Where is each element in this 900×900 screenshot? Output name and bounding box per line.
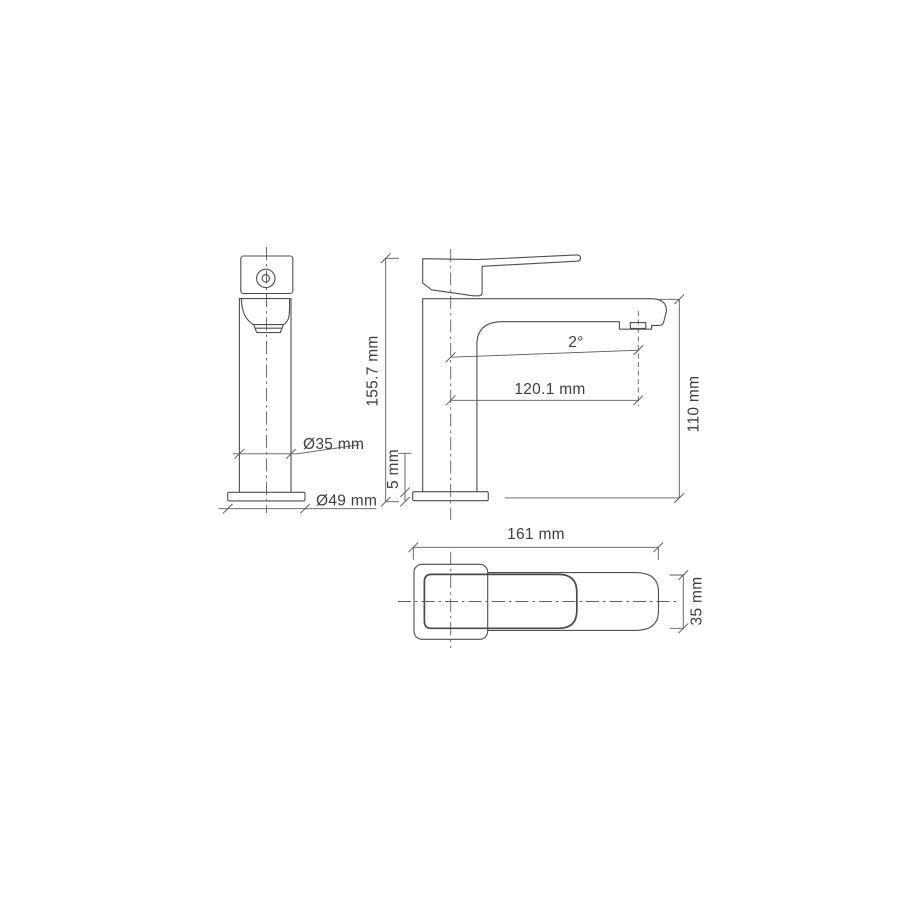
dim-spout-angle-line xyxy=(451,350,639,357)
indicator-dot xyxy=(262,275,269,282)
dim-outlet-height: 110 mm xyxy=(505,295,703,503)
dim-body-diameter: Ø35 mm xyxy=(233,436,364,458)
dim-outlet-height-label: 110 mm xyxy=(686,376,703,433)
dim-body-diameter-label: Ø35 mm xyxy=(303,436,364,453)
dim-base-plate-label: 5 mm xyxy=(385,449,402,489)
dim-base-diameter-label: Ø49 mm xyxy=(316,493,377,510)
side-view: 155.7 mm 5 mm 2° 120.1 mm 110 mm xyxy=(365,249,703,520)
dim-body-width-line xyxy=(670,575,683,628)
top-view: 161 mm 35 mm xyxy=(398,526,706,648)
dim-base-plate: 5 mm xyxy=(385,449,411,506)
dim-overall-length: 161 mm xyxy=(409,526,663,560)
dim-body-width-label: 35 mm xyxy=(689,577,706,626)
dim-spout-reach-label: 120.1 mm xyxy=(514,381,585,398)
dim-overall-length-line xyxy=(413,547,658,559)
front-aerator-collar xyxy=(254,325,284,333)
dim-spout-angle-label: 2° xyxy=(568,334,583,351)
front-view: Ø35 mm Ø49 mm xyxy=(219,247,377,513)
dim-outlet-height-line xyxy=(505,299,679,498)
dim-base-diameter: Ø49 mm xyxy=(219,493,377,514)
dim-spout-angle: 2° xyxy=(446,334,643,362)
dim-overall-height-label: 155.7 mm xyxy=(365,335,382,406)
indicator-ring xyxy=(257,269,275,287)
front-spout-bowl xyxy=(241,299,289,325)
dim-overall-length-label: 161 mm xyxy=(507,526,565,543)
faucet-technical-drawing: Ø35 mm Ø49 mm 155.7 mm 5 mm xyxy=(0,0,900,900)
dim-spout-reach: 120.1 mm xyxy=(446,381,643,405)
product-dimension-sheet: Ø35 mm Ø49 mm 155.7 mm 5 mm xyxy=(0,0,900,900)
side-lever-handle xyxy=(423,255,581,296)
